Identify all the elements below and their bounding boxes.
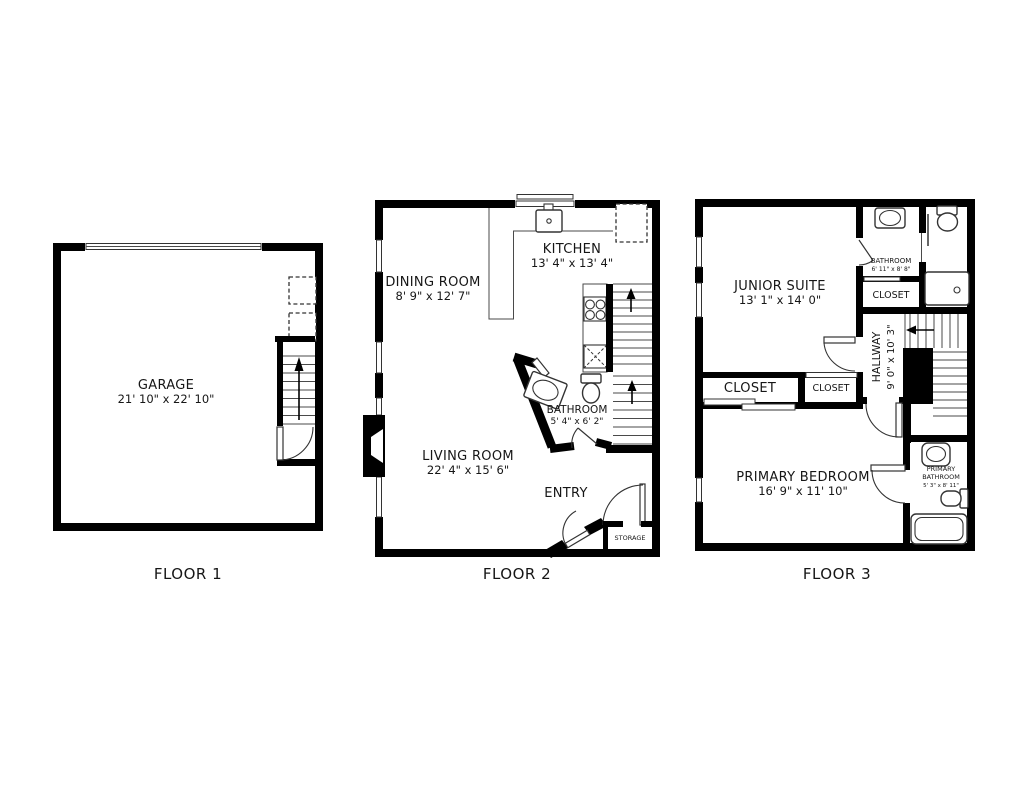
stove-counter xyxy=(583,284,607,372)
refrigerator-icon xyxy=(616,204,647,242)
floor-plan-image: GARAGE 21' 10" x 22' 10" FLOOR 1 xyxy=(0,0,1024,791)
entry-door-right xyxy=(603,484,645,525)
door-swing xyxy=(572,428,597,448)
bathroom-sink-icon xyxy=(875,208,905,228)
bathroom-label: BATHROOM xyxy=(871,257,912,265)
staircase-upper xyxy=(613,284,652,364)
door-swing xyxy=(871,465,905,503)
bathroom-sink-icon xyxy=(922,443,950,466)
kitchen-dims: 13' 4" x 13' 4" xyxy=(531,256,613,270)
shower-icon xyxy=(925,272,969,305)
hallway-dims: 9' 0" x 10' 3" xyxy=(886,324,897,389)
toilet-icon xyxy=(941,489,968,508)
living-room-dims: 22' 4" x 15' 6" xyxy=(427,463,509,477)
stair-direction-arrow xyxy=(628,380,637,404)
fireplace-icon xyxy=(363,415,385,477)
floor-2-stair-walls xyxy=(606,284,653,453)
primary-bedroom-dims: 16' 9" x 11' 10" xyxy=(758,484,848,498)
garage-room-label: GARAGE xyxy=(138,378,194,393)
junior-suite-label: JUNIOR SUITE xyxy=(733,279,826,294)
bathtub-icon xyxy=(911,514,967,544)
floor-plan-svg: GARAGE 21' 10" x 22' 10" FLOOR 1 xyxy=(0,0,1024,791)
closet-label: CLOSET xyxy=(873,290,910,301)
closet-label: CLOSET xyxy=(813,383,850,394)
storage-label: STORAGE xyxy=(615,534,646,542)
primary-bathroom-label-line1: PRIMARY xyxy=(927,465,956,473)
door-swing xyxy=(277,427,313,460)
stair-direction-arrow xyxy=(295,357,304,420)
primary-bathroom-label-line2: BATHROOM xyxy=(922,473,960,481)
floor-1-plan: GARAGE 21' 10" x 22' 10" FLOOR 1 xyxy=(53,243,323,583)
utility-equipment-boxes xyxy=(289,277,316,341)
junior-suite-dims: 13' 1" x 14' 0" xyxy=(739,293,821,307)
garage-room-dims: 21' 10" x 22' 10" xyxy=(118,392,215,406)
entry-label: ENTRY xyxy=(544,486,588,501)
stove-icon xyxy=(584,297,606,321)
dishwasher-icon xyxy=(584,345,607,368)
toilet-icon xyxy=(581,374,601,403)
kitchen-label: KITCHEN xyxy=(543,242,601,257)
hallway-label-group: HALLWAY 9' 0" x 10' 3" xyxy=(870,324,897,389)
door-swing xyxy=(824,337,855,371)
kitchen-sink-icon xyxy=(536,204,562,232)
door-swing xyxy=(866,403,902,437)
bathroom-label: BATHROOM xyxy=(547,404,608,416)
floor-1-label: FLOOR 1 xyxy=(154,565,222,583)
hallway-label: HALLWAY xyxy=(870,331,883,382)
floor-3-label: FLOOR 3 xyxy=(803,565,871,583)
staircase-lower xyxy=(613,376,652,444)
floor-3-plan: JUNIOR SUITE 13' 1" x 14' 0" BATHROOM 6'… xyxy=(695,199,975,583)
dining-room-label: DINING ROOM xyxy=(385,275,480,290)
closet-label: CLOSET xyxy=(724,381,776,396)
sliding-door xyxy=(742,404,795,410)
staircase xyxy=(283,356,315,424)
living-room-label: LIVING ROOM xyxy=(422,449,514,464)
floor-2-walls xyxy=(375,200,660,557)
bathroom-dims: 6' 11" x 8' 8" xyxy=(871,266,910,273)
bathroom-dims: 5' 4" x 6' 2" xyxy=(551,417,604,427)
floor-2-label: FLOOR 2 xyxy=(483,565,551,583)
toilet-icon xyxy=(937,206,958,231)
floor-2-bathroom-walls xyxy=(514,357,611,449)
garage-door xyxy=(86,244,261,250)
primary-bedroom-label: PRIMARY BEDROOM xyxy=(736,470,869,485)
primary-bathroom-dims: 5' 3" x 8' 11" xyxy=(923,483,959,489)
floor-2-plan: DINING ROOM 8' 9" x 12' 7" KITCHEN 13' 4… xyxy=(363,195,660,584)
dining-room-dims: 8' 9" x 12' 7" xyxy=(396,289,471,303)
